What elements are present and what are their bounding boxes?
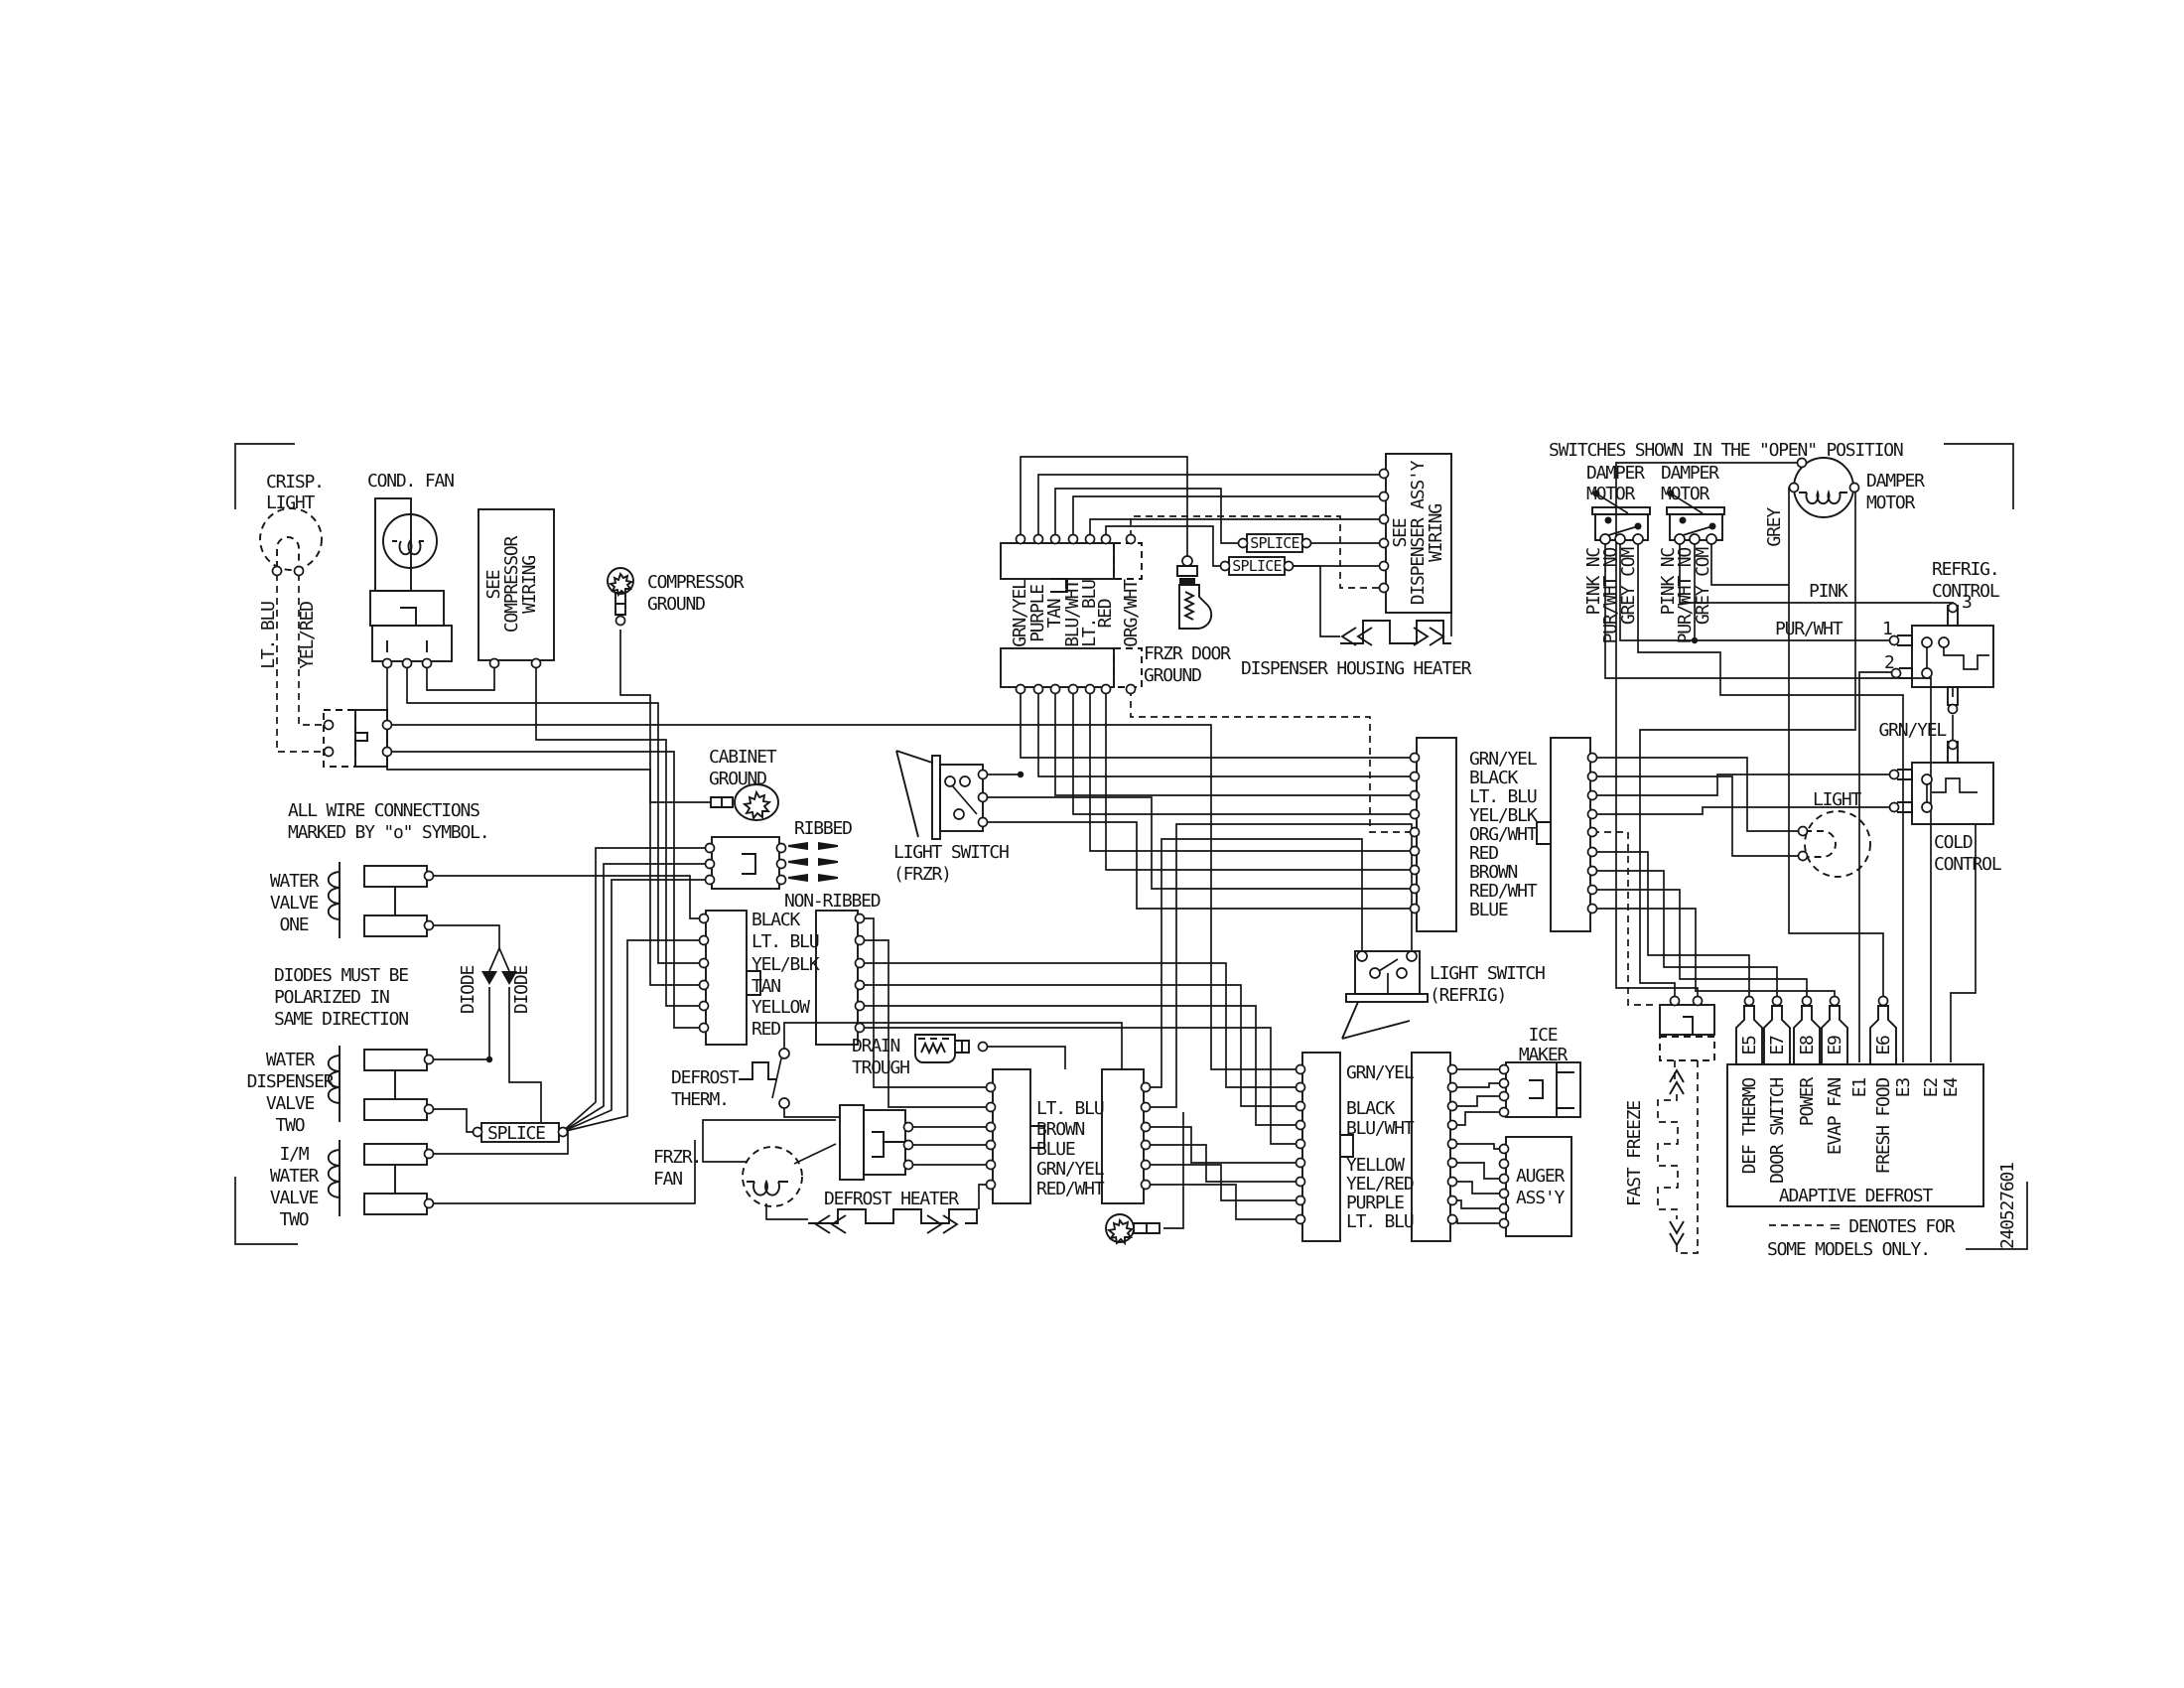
svg-text:YELLOW: YELLOW: [751, 997, 810, 1018]
water-dispenser-valve-two: WATER DISPENSER VALVE TWO: [247, 1046, 434, 1136]
svg-text:VALVE: VALVE: [266, 1093, 315, 1114]
svg-text:ASS'Y: ASS'Y: [1516, 1188, 1566, 1208]
crisp-light-switch: [324, 710, 392, 767]
svg-text:SAME DIRECTION: SAME DIRECTION: [274, 1009, 408, 1030]
svg-text:WATER: WATER: [270, 1166, 320, 1187]
svg-text:E8: E8: [1797, 1036, 1818, 1055]
svg-text:DIODE: DIODE: [458, 966, 478, 1015]
svg-text:SOME MODELS ONLY.: SOME MODELS ONLY.: [1767, 1239, 1930, 1260]
heater-coil-icon: [1340, 621, 1451, 643]
ice-maker: ICE MAKER: [1500, 1025, 1581, 1117]
fast-freeze-heater-icon: [1658, 1094, 1678, 1219]
svg-text:DRAIN: DRAIN: [852, 1036, 900, 1056]
svg-text:GREY COM: GREY COM: [1618, 547, 1639, 625]
connector-mid-lower: LT. BLU BROWN BLUE GRN/YEL RED/WHT: [987, 1069, 1160, 1243]
note-switches: SWITCHES SHOWN IN THE "OPEN" POSITION: [1549, 440, 1903, 461]
svg-text:GRN/YEL: GRN/YEL: [1469, 749, 1538, 770]
svg-text:(FRZR): (FRZR): [893, 864, 951, 885]
svg-text:AUGER: AUGER: [1516, 1166, 1566, 1187]
crisp-light: CRISP. LIGHT LT. BLU YEL/RED: [258, 472, 392, 767]
adaptive-defrost: DEF THERMO DOOR SWITCH POWER EVAP FAN E1…: [1727, 1064, 1983, 1206]
svg-text:BLUE: BLUE: [1469, 900, 1508, 920]
svg-text:BLACK: BLACK: [1346, 1098, 1396, 1119]
frzr-fan: FRZR. FAN: [653, 1147, 802, 1206]
ribbed-connector: RIBBED NON-RIBBED: [706, 818, 881, 912]
svg-text:SPLICE: SPLICE: [1250, 534, 1299, 552]
damper-motor-1: DAMPER MOTOR PINK NC PUR/WHT NO GREY COM: [1583, 463, 1650, 643]
diode-icon: [481, 971, 497, 985]
spade-e6: E6: [1870, 997, 1896, 1065]
refrig-control: REFRIG. CONTROL 3 1 2: [1882, 559, 2000, 714]
svg-text:BROWN: BROWN: [1469, 862, 1518, 883]
dispenser-assy-box: SEE DISPENSER ASS'Y WIRING: [1380, 454, 1452, 613]
svg-text:BLACK: BLACK: [751, 910, 801, 930]
svg-text:TROUGH: TROUGH: [852, 1057, 909, 1078]
svg-text:FAST FREEZE: FAST FREEZE: [1624, 1101, 1645, 1206]
svg-text:SPLICE: SPLICE: [1232, 557, 1282, 575]
light-switch-frzr: LIGHT SWITCH (FRZR): [893, 751, 1009, 885]
svg-text:MOTOR: MOTOR: [1866, 492, 1916, 513]
svg-text:ICE: ICE: [1529, 1025, 1558, 1046]
svg-text:GROUND: GROUND: [647, 594, 705, 615]
svg-text:FRZR DOOR: FRZR DOOR: [1144, 643, 1231, 664]
svg-text:LT. BLU: LT. BLU: [1036, 1098, 1104, 1119]
svg-text:EVAP FAN: EVAP FAN: [1825, 1078, 1845, 1155]
spade-e8: E8: [1794, 997, 1820, 1065]
splice-top-2: SPLICE: [1221, 557, 1294, 575]
svg-text:DAMPER: DAMPER: [1661, 463, 1719, 484]
compressor-wiring-box: SEE COMPRESSOR WIRING: [478, 509, 554, 668]
wiring-diagram-page: CRISP. LIGHT LT. BLU YEL/RED COND. FAN S…: [0, 0, 2184, 1688]
wire-label-pur-wht: PUR/WHT: [1775, 619, 1843, 639]
spade-e9: E9: [1822, 997, 1847, 1065]
fan-motor-icon: [743, 1147, 802, 1206]
terminal-1-label: 1: [1882, 619, 1892, 639]
refrigerator-wiring-diagram: CRISP. LIGHT LT. BLU YEL/RED COND. FAN S…: [0, 0, 2184, 1688]
svg-text:E6: E6: [1873, 1036, 1894, 1055]
svg-text:SPLICE: SPLICE: [487, 1123, 545, 1144]
svg-text:RED: RED: [1095, 599, 1116, 628]
svg-text:BLU/WHT: BLU/WHT: [1346, 1118, 1415, 1139]
svg-text:POWER: POWER: [1797, 1077, 1818, 1127]
svg-text:PURPLE: PURPLE: [1346, 1193, 1404, 1213]
light-switch-refrig: LIGHT SWITCH (REFRIG): [1342, 951, 1545, 1039]
svg-text:POLARIZED IN: POLARIZED IN: [274, 987, 389, 1008]
svg-text:DIODE: DIODE: [511, 966, 532, 1015]
frzr-door-ground: FRZR DOOR GROUND: [1144, 556, 1231, 686]
spade-terminals: E5 E7 E8 E9 E6: [1736, 997, 1896, 1065]
svg-text:I/M: I/M: [280, 1144, 310, 1165]
svg-text:VALVE: VALVE: [270, 893, 319, 914]
svg-text:E1: E1: [1849, 1078, 1870, 1098]
cold-control: COLD CONTROL: [1890, 741, 2002, 876]
splice-left: SPLICE: [474, 1123, 568, 1144]
svg-text:RED: RED: [1469, 843, 1498, 864]
wire-label-grn-yel: GRN/YEL: [1879, 720, 1948, 741]
svg-text:RIBBED: RIBBED: [794, 818, 852, 839]
svg-text:LT. BLU: LT. BLU: [1346, 1211, 1414, 1232]
connector-top: GRN/YEL PURPLE TAN BLU/WHT LT. BLU RED O…: [1001, 535, 1142, 694]
wire-label-lt-blu: LT. BLU: [258, 602, 279, 669]
note-models: = DENOTES FOR SOME MODELS ONLY.: [1767, 1216, 1956, 1260]
svg-text:LIGHT: LIGHT: [1813, 789, 1862, 810]
svg-text:E3: E3: [1893, 1078, 1914, 1098]
svg-text:NON-RIBBED: NON-RIBBED: [784, 891, 881, 912]
defrost-therm: DEFROST THERM.: [671, 1049, 789, 1110]
svg-text:ORG/WHT: ORG/WHT: [1469, 824, 1538, 845]
crisp-light-bulb-icon: [260, 508, 322, 570]
auger-assy: AUGER ASS'Y: [1500, 1137, 1572, 1236]
svg-text:E5: E5: [1739, 1036, 1760, 1055]
svg-text:REFRIG.: REFRIG.: [1932, 559, 1998, 580]
svg-text:FAN: FAN: [653, 1169, 682, 1190]
svg-text:BROWN: BROWN: [1036, 1119, 1085, 1140]
svg-text:WIRING: WIRING: [1426, 504, 1446, 562]
svg-text:THERM.: THERM.: [671, 1089, 729, 1110]
svg-text:LT. BLU: LT. BLU: [751, 931, 819, 952]
cabinet-ground: CABINET GROUND: [709, 747, 778, 820]
terminal-3-label: 3: [1962, 592, 1972, 613]
svg-text:COLD: COLD: [1934, 832, 1973, 853]
svg-text:ORG/WHT: ORG/WHT: [1121, 579, 1142, 647]
svg-text:YELLOW: YELLOW: [1346, 1155, 1405, 1176]
svg-text:WATER: WATER: [266, 1050, 316, 1070]
connector-mid-upper: BLACK LT. BLU YEL/BLK TAN YELLOW RED: [700, 910, 865, 1045]
svg-text:= DENOTES FOR: = DENOTES FOR: [1830, 1216, 1956, 1237]
svg-text:GRN/YEL: GRN/YEL: [1346, 1062, 1415, 1083]
connector-bottom-right: GRN/YEL BLACK BLU/WHT YELLOW YEL/RED PUR…: [1297, 1053, 1457, 1241]
svg-text:GREY COM: GREY COM: [1693, 547, 1713, 625]
svg-text:E9: E9: [1825, 1036, 1845, 1055]
fast-freeze: FAST FREEZE: [1624, 997, 1714, 1254]
svg-text:LIGHT SWITCH: LIGHT SWITCH: [893, 842, 1009, 863]
svg-text:BLUE: BLUE: [1036, 1139, 1075, 1160]
svg-text:CABINET: CABINET: [709, 747, 777, 768]
svg-text:E2: E2: [1921, 1078, 1942, 1098]
svg-text:DAMPER: DAMPER: [1866, 471, 1925, 492]
svg-text:BLACK: BLACK: [1469, 768, 1519, 788]
svg-text:YEL/BLK: YEL/BLK: [751, 954, 820, 975]
svg-text:FRESH FOOD: FRESH FOOD: [1873, 1078, 1894, 1175]
water-valve-one: WATER VALVE ONE: [270, 862, 434, 938]
note-diodes: DIODES MUST BE: [274, 965, 408, 986]
svg-text:DISPENSER: DISPENSER: [247, 1071, 335, 1092]
svg-text:LIGHT SWITCH: LIGHT SWITCH: [1430, 963, 1545, 984]
dispenser-housing-heater: DISPENSER HOUSING HEATER: [1241, 621, 1472, 679]
svg-text:MARKED BY "o" SYMBOL.: MARKED BY "o" SYMBOL.: [288, 822, 488, 843]
wire-label-yel-red: YEL/RED: [297, 602, 318, 669]
svg-text:YEL/RED: YEL/RED: [1346, 1174, 1414, 1195]
svg-text:DEFROST: DEFROST: [671, 1067, 740, 1088]
svg-text:TWO: TWO: [276, 1115, 305, 1136]
svg-text:TAN: TAN: [751, 976, 780, 997]
svg-text:(REFRIG): (REFRIG): [1430, 985, 1506, 1006]
cond-fan: COND. FAN: [367, 471, 454, 668]
svg-text:WIRING: WIRING: [519, 556, 540, 614]
crisp-light-label: CRISP.: [266, 472, 324, 492]
wire-label-pink: PINK: [1809, 581, 1848, 602]
svg-text:ADAPTIVE DEFROST: ADAPTIVE DEFROST: [1779, 1186, 1934, 1206]
svg-text:E4: E4: [1941, 1078, 1962, 1098]
svg-text:GROUND: GROUND: [1144, 665, 1201, 686]
wire-label-grey: GREY: [1764, 507, 1785, 547]
diodes: DIODE DIODE: [458, 966, 532, 1015]
svg-text:WATER: WATER: [270, 871, 320, 892]
svg-text:DEF THERMO: DEF THERMO: [1739, 1078, 1760, 1175]
door-clip-icon: [1179, 585, 1211, 629]
damper-motor-2: DAMPER MOTOR PINK NC PUR/WHT NO GREY COM: [1658, 463, 1724, 643]
spade-plug-icons: [788, 842, 838, 882]
spade-e5: E5: [1736, 997, 1762, 1065]
svg-text:RED/WHT: RED/WHT: [1469, 881, 1538, 902]
svg-text:GROUND: GROUND: [709, 769, 766, 789]
splice-top-1: SPLICE: [1239, 534, 1311, 552]
svg-text:DAMPER: DAMPER: [1586, 463, 1645, 484]
spade-e7: E7: [1764, 997, 1790, 1065]
ground-lug-icon: [1106, 1214, 1160, 1243]
svg-text:TWO: TWO: [280, 1209, 309, 1230]
svg-text:CONTROL: CONTROL: [1934, 854, 2002, 875]
drain-trough: DRAIN TROUGH: [852, 1035, 988, 1078]
svg-text:RED/WHT: RED/WHT: [1036, 1179, 1105, 1199]
svg-text:COMPRESSOR: COMPRESSOR: [647, 572, 745, 593]
connector-right: GRN/YEL BLACK LT. BLU YEL/BLK ORG/WHT RE…: [1411, 738, 1597, 931]
defrost-heater-assembly: DEFROST HEATER: [808, 1105, 977, 1233]
svg-text:YEL/BLK: YEL/BLK: [1469, 805, 1538, 826]
compressor-ground: COMPRESSOR GROUND: [608, 568, 745, 626]
svg-text:LT. BLU: LT. BLU: [1469, 786, 1537, 807]
cond-fan-label: COND. FAN: [367, 471, 454, 492]
note-connections: ALL WIRE CONNECTIONS: [288, 800, 479, 821]
svg-text:E7: E7: [1767, 1036, 1788, 1055]
svg-text:FRZR.: FRZR.: [653, 1147, 701, 1168]
svg-text:DISPENSER HOUSING HEATER: DISPENSER HOUSING HEATER: [1241, 658, 1472, 679]
svg-text:GRN/YEL: GRN/YEL: [1036, 1159, 1105, 1180]
svg-text:DEFROST HEATER: DEFROST HEATER: [824, 1189, 959, 1209]
svg-text:DOOR SWITCH: DOOR SWITCH: [1767, 1078, 1788, 1184]
light-bulb-icon: [1805, 811, 1870, 877]
svg-text:RED: RED: [751, 1019, 780, 1040]
part-number: 240527601: [1997, 1163, 2018, 1249]
svg-text:ONE: ONE: [280, 914, 309, 935]
svg-text:LIGHT: LIGHT: [266, 492, 316, 513]
im-water-valve-two: I/M WATER VALVE TWO: [270, 1140, 434, 1230]
svg-text:VALVE: VALVE: [270, 1188, 319, 1208]
